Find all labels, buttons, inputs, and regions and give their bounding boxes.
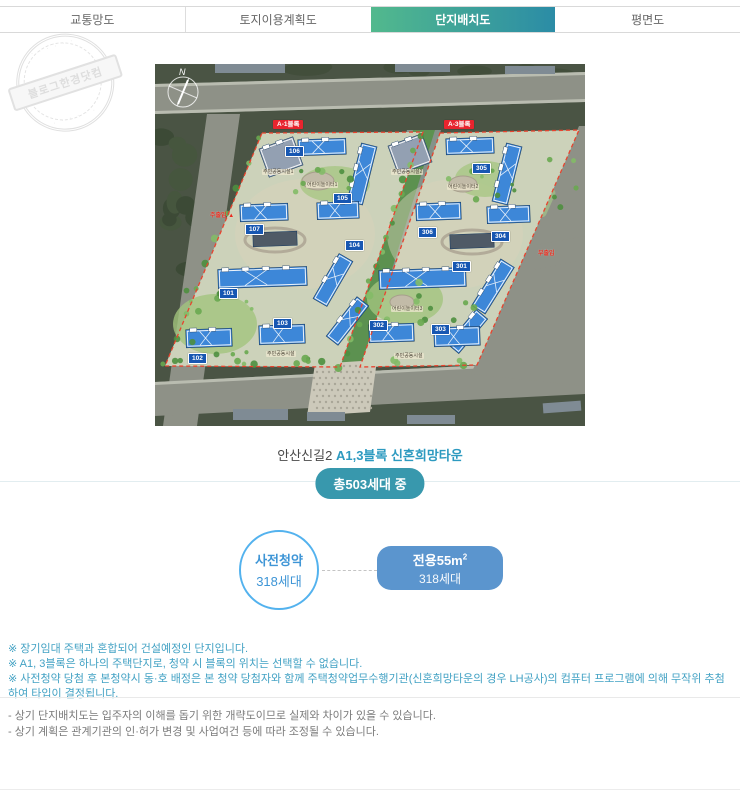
building-number-label: 101 <box>219 288 238 299</box>
stamp-inner-ring-icon <box>14 32 112 130</box>
building-number-label: 303 <box>431 324 450 335</box>
divider-line <box>0 697 740 698</box>
stamp-ring-icon <box>4 21 127 144</box>
circle-units: 318세대 <box>256 571 302 590</box>
block-label: A-1블록 <box>273 120 303 129</box>
building-number-label: 107 <box>245 224 264 235</box>
plan-caption: 안산신길2 A1,3블록 신혼희망타운 <box>0 445 740 464</box>
stamp-arc-text: · · · · · · <box>2 28 103 67</box>
notes-secondary: - 상기 단지배치도는 입주자의 이해를 돕기 위한 개략도이므로 실제와 차이… <box>8 709 732 740</box>
site-plan-image: N A-1블록A-3블록1061051071041011031023053063… <box>155 64 585 426</box>
tab-bar: 교통망도토지이용계획도단지배치도평면도 <box>0 6 740 33</box>
site-plan-labels: A-1블록A-3블록106105107104101103102305306304… <box>155 64 585 426</box>
entrance-label: 주출입 ▲ <box>210 210 234 219</box>
building-number-label: 106 <box>285 146 304 157</box>
unit-type-title: 전용55m2 <box>413 550 467 569</box>
note-line: - 상기 계획은 관계기관의 인·허가 변경 및 사업여건 등에 따라 조정될 … <box>8 725 732 741</box>
note-line: ※ 장기임대 주택과 혼합되어 건설예정인 단지입니다. <box>8 642 732 657</box>
divider-line <box>0 789 740 790</box>
caption-prefix: 안산신길2 <box>277 448 332 463</box>
watermark-text: 블로그한경닷컴 <box>7 54 123 112</box>
building-number-label: 104 <box>345 240 364 251</box>
caption-highlight: A1,3블록 신혼희망타운 <box>336 448 463 463</box>
building-number-label: 105 <box>333 193 352 204</box>
note-line: ※ A1, 3블록은 하나의 주택단지로, 청약 시 블록의 위치는 선택할 수… <box>8 657 732 672</box>
facility-label: 주민공동시설1 <box>262 169 294 175</box>
entrance-label: 부출입 <box>538 248 555 257</box>
note-line: - 상기 단지배치도는 입주자의 이해를 돕기 위한 개략도이므로 실제와 차이… <box>8 709 732 725</box>
unit-type-units: 318세대 <box>419 570 461 587</box>
pre-subscription-circle: 사전청약 318세대 <box>239 530 319 610</box>
building-number-label: 302 <box>369 320 388 331</box>
tab-3[interactable]: 단지배치도 <box>371 7 556 32</box>
circle-title: 사전청약 <box>255 550 303 569</box>
facility-label: 주민공동시설 <box>394 353 424 359</box>
building-number-label: 305 <box>472 163 491 174</box>
notes-primary: ※ 장기임대 주택과 혼합되어 건설예정인 단지입니다.※ A1, 3블록은 하… <box>8 642 732 702</box>
block-label: A-3블록 <box>444 120 474 129</box>
facility-label: 어린이놀이터1 <box>306 182 338 188</box>
watermark-stamp: · · · · · · · · · · · · 블로그한경닷컴 <box>0 16 130 147</box>
page: 교통망도토지이용계획도단지배치도평면도 · · · · · · · · · · … <box>0 0 740 792</box>
facility-label: 주민공동시설2 <box>391 169 423 175</box>
building-number-label: 301 <box>452 261 471 272</box>
building-number-label: 304 <box>491 231 510 242</box>
facility-label: 어린이놀이터3 <box>391 306 423 312</box>
connector-line <box>322 570 377 571</box>
unit-type-box: 전용55m2 318세대 <box>377 546 503 590</box>
building-number-label: 103 <box>273 318 292 329</box>
tab-1[interactable]: 교통망도 <box>0 7 185 32</box>
facility-label: 주민공동시설 <box>266 351 296 357</box>
building-number-label: 102 <box>188 353 207 364</box>
facility-label: 어린이놀이터2 <box>447 184 479 190</box>
stamp-arc-text: · · · · · · <box>25 97 126 136</box>
tab-2[interactable]: 토지이용계획도 <box>185 7 371 32</box>
tab-4[interactable]: 평면도 <box>555 7 740 32</box>
total-households-badge: 총503세대 중 <box>315 468 424 499</box>
building-number-label: 306 <box>418 227 437 238</box>
